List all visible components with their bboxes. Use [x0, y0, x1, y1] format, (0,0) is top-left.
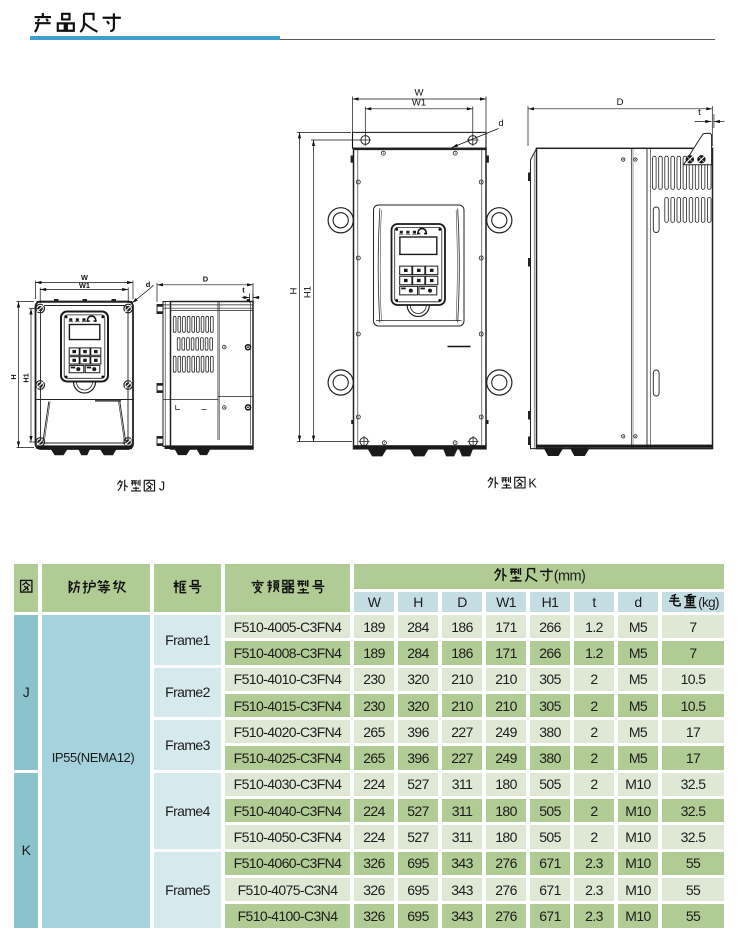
svg-text:H: H — [289, 287, 300, 294]
svg-text:D: D — [203, 275, 209, 284]
svg-text:H1: H1 — [303, 286, 314, 298]
svg-text:K: K — [528, 477, 537, 491]
svg-text:D: D — [617, 97, 624, 108]
svg-text:d: d — [498, 118, 503, 129]
svg-text:H1: H1 — [22, 373, 31, 382]
svg-text:W1: W1 — [412, 98, 426, 109]
svg-text:W1: W1 — [79, 281, 90, 290]
svg-text:H: H — [9, 374, 18, 379]
svg-text:d: d — [146, 280, 151, 289]
svg-text:t: t — [698, 107, 701, 118]
svg-text:J: J — [159, 480, 165, 494]
svg-text:t: t — [242, 286, 245, 295]
